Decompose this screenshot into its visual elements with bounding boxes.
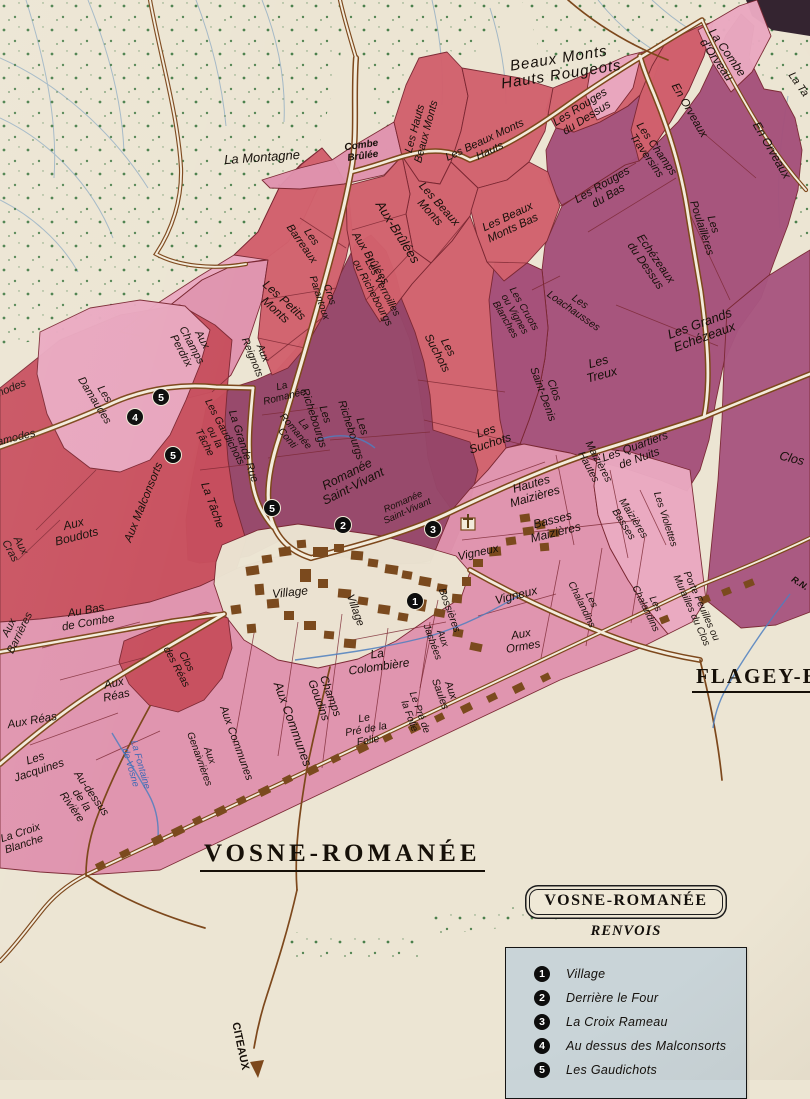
legend: VOSNE-ROMANÉE RENVOIS 1Village2Derrière … — [505, 889, 747, 1099]
legend-panel: 1Village2Derrière le Four3La Croix Ramea… — [505, 947, 747, 1099]
legend-item-number: 1 — [534, 966, 550, 982]
legend-item-label: Derrière le Four — [566, 991, 658, 1005]
legend-item-number: 4 — [534, 1038, 550, 1054]
building — [247, 624, 257, 634]
renvoi-marker-number: 1 — [412, 596, 418, 608]
building — [284, 611, 294, 620]
building — [473, 559, 483, 567]
building — [384, 564, 398, 575]
legend-item-label: Les Gaudichots — [566, 1063, 657, 1077]
town-title-flagey: FLAGEY-ECHÉZEAUX — [692, 664, 810, 693]
renvoi-marker-number: 5 — [269, 503, 275, 515]
renvoi-marker-number: 5 — [158, 392, 164, 404]
legend-item-number: 5 — [534, 1062, 550, 1078]
town-title-vosne: VOSNE-ROMANÉE — [200, 840, 485, 872]
legend-item: 1Village — [518, 966, 736, 982]
building — [300, 569, 311, 582]
building — [334, 544, 344, 552]
legend-item: 2Derrière le Four — [518, 990, 736, 1006]
building — [519, 513, 530, 522]
renvoi-marker-number: 2 — [340, 520, 346, 532]
renvoi-marker-number: 5 — [170, 450, 176, 462]
building — [505, 536, 516, 545]
renvoi-marker-number: 3 — [430, 524, 436, 536]
building — [401, 570, 412, 580]
legend-item-label: La Croix Rameau — [566, 1015, 668, 1029]
building — [397, 612, 408, 622]
building — [297, 540, 307, 549]
vosne-romanee-wine-map: { "titles":{"village":"VOSNE-ROMANÉE","n… — [0, 0, 810, 1080]
building — [351, 550, 364, 560]
building — [540, 543, 550, 552]
building — [318, 579, 328, 588]
building — [313, 547, 328, 557]
legend-item: 5Les Gaudichots — [518, 1062, 736, 1078]
building — [304, 621, 316, 630]
legend-item: 4Au dessus des Malconsorts — [518, 1038, 736, 1054]
building — [278, 546, 291, 557]
building — [230, 604, 241, 614]
legend-title-box: VOSNE-ROMANÉE — [529, 889, 722, 915]
building — [255, 584, 265, 596]
building — [462, 577, 471, 586]
legend-item: 3La Croix Rameau — [518, 1014, 736, 1030]
building — [367, 558, 378, 567]
legend-item-label: Village — [566, 967, 605, 981]
building — [377, 604, 390, 615]
building — [261, 554, 272, 563]
legend-subtitle: RENVOIS — [505, 923, 747, 940]
building — [344, 638, 357, 648]
legend-item-label: Au dessus des Malconsorts — [566, 1039, 726, 1053]
building — [324, 631, 335, 640]
legend-item-number: 3 — [534, 1014, 550, 1030]
legend-item-number: 2 — [534, 990, 550, 1006]
building — [245, 565, 259, 576]
renvoi-marker-number: 4 — [132, 412, 138, 424]
legend-title: VOSNE-ROMANÉE — [544, 892, 707, 909]
